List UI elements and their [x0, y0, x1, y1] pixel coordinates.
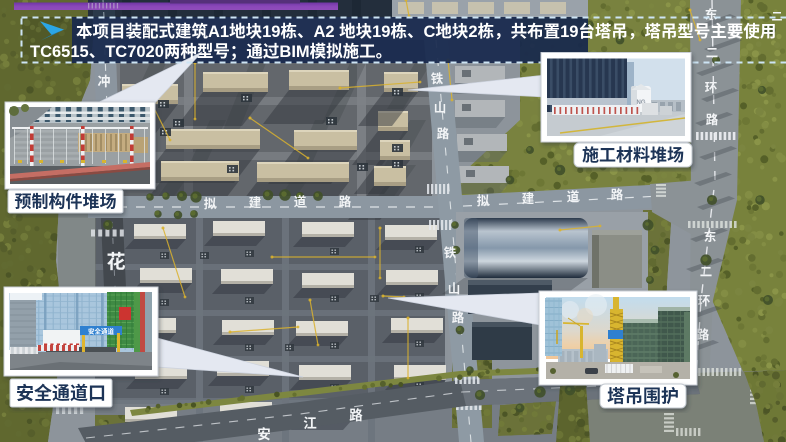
svg-text:山: 山	[434, 97, 447, 116]
svg-text:塔吊围护: 塔吊围护	[607, 382, 679, 408]
svg-text:拟: 拟	[204, 193, 217, 212]
svg-text:路: 路	[697, 324, 710, 343]
svg-text:TC6515、TC7020两种型号；通过BIM模拟施工。: TC6515、TC7020两种型号；通过BIM模拟施工。	[30, 38, 392, 62]
svg-text:道: 道	[294, 191, 307, 210]
svg-text:东: 东	[704, 226, 717, 245]
svg-text:路: 路	[706, 109, 719, 128]
svg-text:二: 二	[706, 42, 719, 61]
svg-text:道: 道	[567, 186, 580, 205]
svg-text:建: 建	[249, 192, 262, 211]
svg-text:二: 二	[700, 261, 713, 280]
svg-text:花: 花	[106, 247, 125, 274]
svg-text:施工材料堆场: 施工材料堆场	[582, 141, 684, 166]
svg-text:铁: 铁	[444, 242, 457, 261]
svg-text:路: 路	[339, 191, 352, 210]
svg-text:路: 路	[349, 404, 363, 424]
svg-text:拟: 拟	[477, 190, 490, 209]
svg-text:环: 环	[705, 77, 718, 96]
svg-text:安: 安	[257, 423, 271, 442]
svg-text:山: 山	[448, 278, 461, 297]
svg-text:建: 建	[522, 188, 535, 207]
svg-text:安全通道口: 安全通道口	[16, 379, 106, 405]
svg-text:江: 江	[303, 412, 317, 432]
svg-text:环: 环	[698, 290, 711, 309]
svg-text:路: 路	[437, 123, 450, 142]
svg-text:冲: 冲	[97, 71, 110, 90]
svg-text:安全通道: 安全通道	[88, 326, 115, 336]
svg-text:铁: 铁	[431, 68, 444, 87]
svg-text:预制构件堆场: 预制构件堆场	[15, 188, 117, 213]
svg-text:路: 路	[611, 184, 624, 203]
